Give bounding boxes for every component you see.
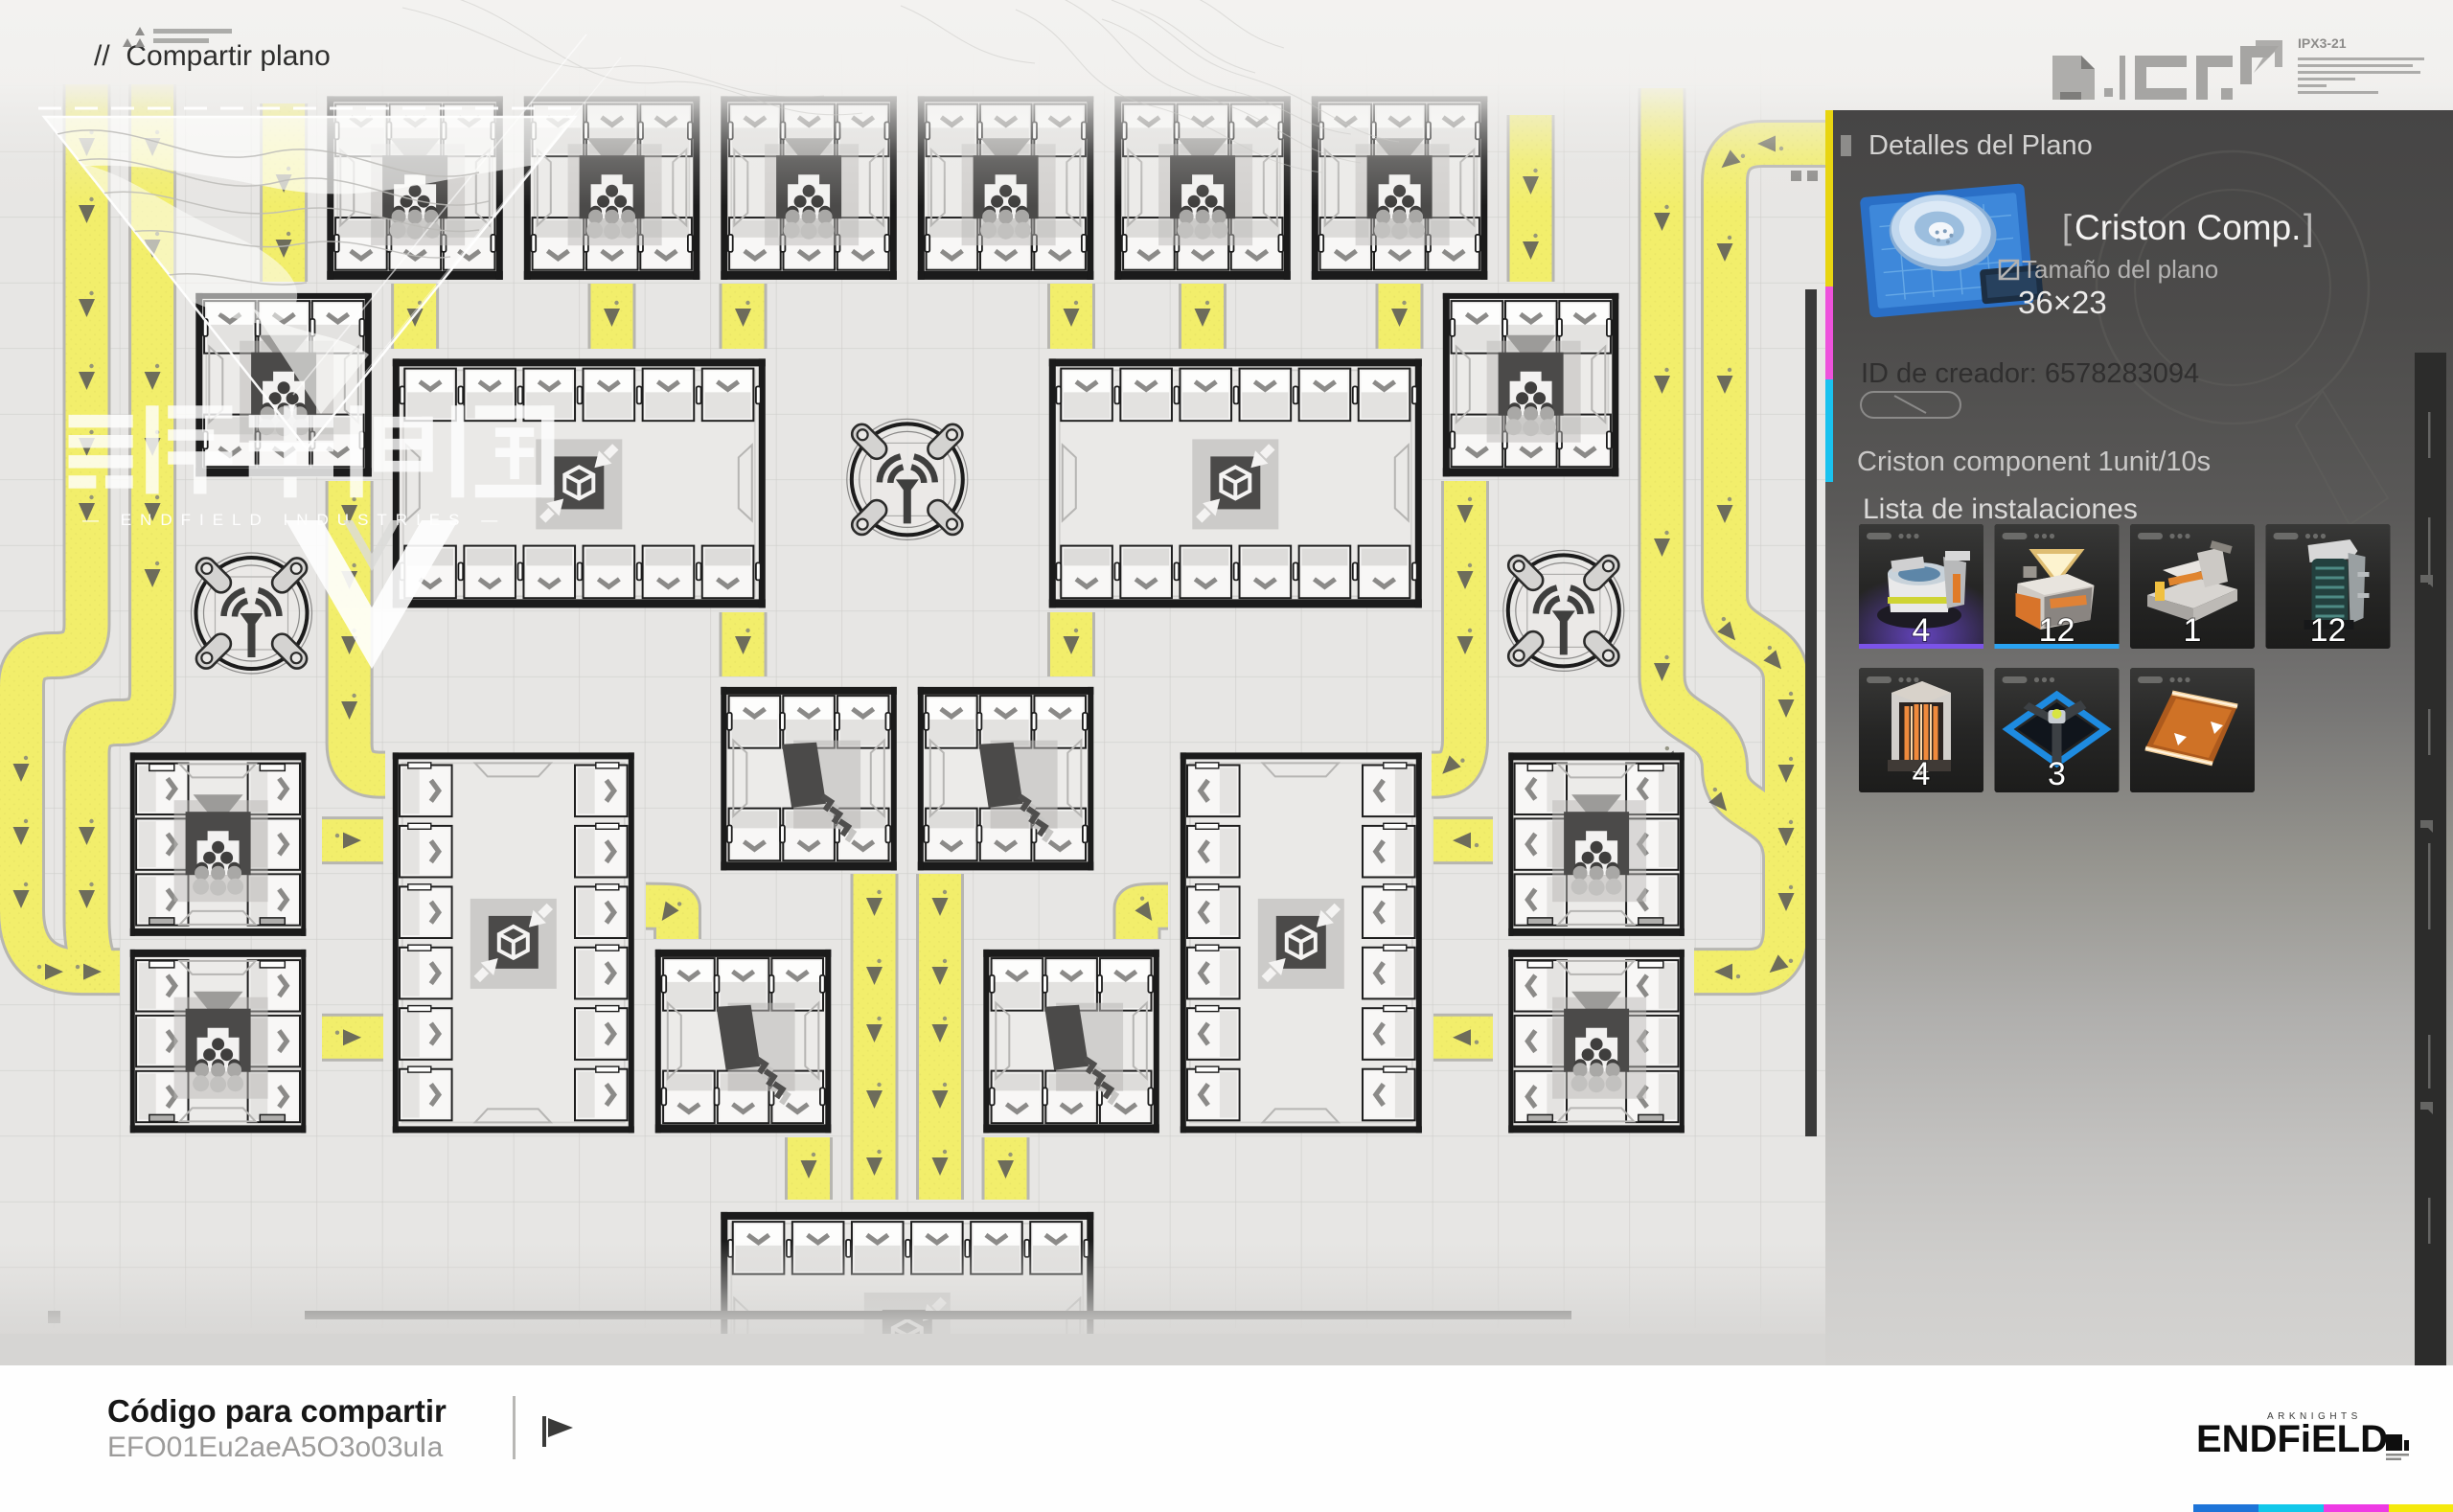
svg-text:4: 4 — [1913, 612, 1931, 649]
svg-text:3: 3 — [2048, 756, 2066, 792]
svg-text:36×23: 36×23 — [2018, 285, 2107, 320]
svg-text:EFO01Eu2aeA5O3o03uIa: EFO01Eu2aeA5O3o03uIa — [107, 1432, 444, 1463]
svg-text:Criston Comp.: Criston Comp. — [2075, 208, 2301, 247]
svg-text:[: [ — [2062, 207, 2072, 246]
svg-text:]: ] — [2304, 208, 2314, 248]
svg-text:1: 1 — [2184, 612, 2202, 649]
svg-text:Código para compartir: Código para compartir — [107, 1393, 447, 1429]
svg-text:Tamaño del plano: Tamaño del plano — [2022, 255, 2218, 284]
svg-text:12: 12 — [2310, 612, 2347, 649]
svg-text:4: 4 — [1913, 756, 1931, 792]
svg-text:ID de creador: 6578283094: ID de creador: 6578283094 — [1861, 358, 2199, 389]
svg-text:12: 12 — [2039, 612, 2075, 649]
svg-text:ENDFiELD: ENDFiELD — [2196, 1418, 2388, 1460]
svg-text:Lista de instalaciones: Lista de instalaciones — [1863, 493, 2138, 525]
svg-text:Criston component 1unit/10s: Criston component 1unit/10s — [1857, 447, 2211, 477]
svg-text:Detalles del Plano: Detalles del Plano — [1868, 130, 2093, 161]
